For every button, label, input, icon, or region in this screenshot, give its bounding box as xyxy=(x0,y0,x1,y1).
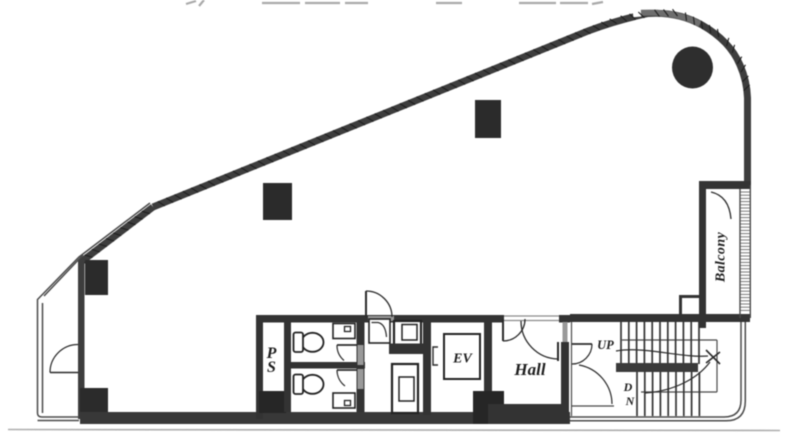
svg-text:UP: UP xyxy=(597,338,614,352)
svg-text:Hall: Hall xyxy=(513,360,545,379)
svg-text:N: N xyxy=(625,394,636,408)
svg-text:D: D xyxy=(623,380,633,394)
svg-text:S: S xyxy=(267,359,276,376)
svg-text:EV: EV xyxy=(452,352,473,367)
svg-text:Balcony: Balcony xyxy=(714,231,729,283)
